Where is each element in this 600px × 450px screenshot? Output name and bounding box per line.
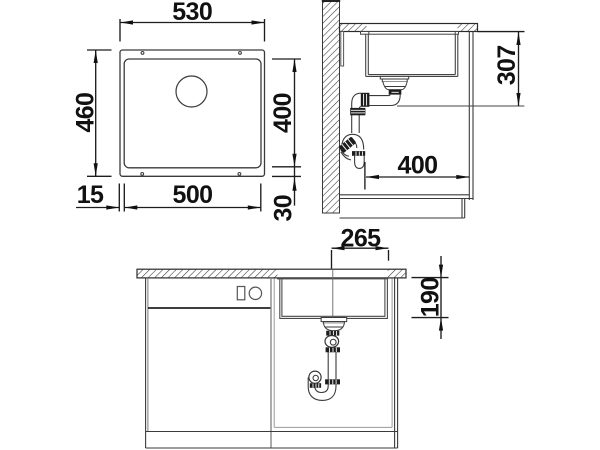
svg-text:500: 500 (173, 181, 213, 209)
svg-text:460: 460 (71, 93, 99, 133)
svg-text:30: 30 (270, 195, 298, 222)
svg-text:265: 265 (341, 225, 382, 253)
svg-text:15: 15 (77, 181, 104, 209)
svg-text:307: 307 (493, 45, 521, 85)
svg-text:400: 400 (269, 93, 297, 133)
svg-text:190: 190 (417, 277, 445, 317)
svg-text:530: 530 (172, 0, 212, 26)
svg-text:400: 400 (398, 151, 438, 179)
